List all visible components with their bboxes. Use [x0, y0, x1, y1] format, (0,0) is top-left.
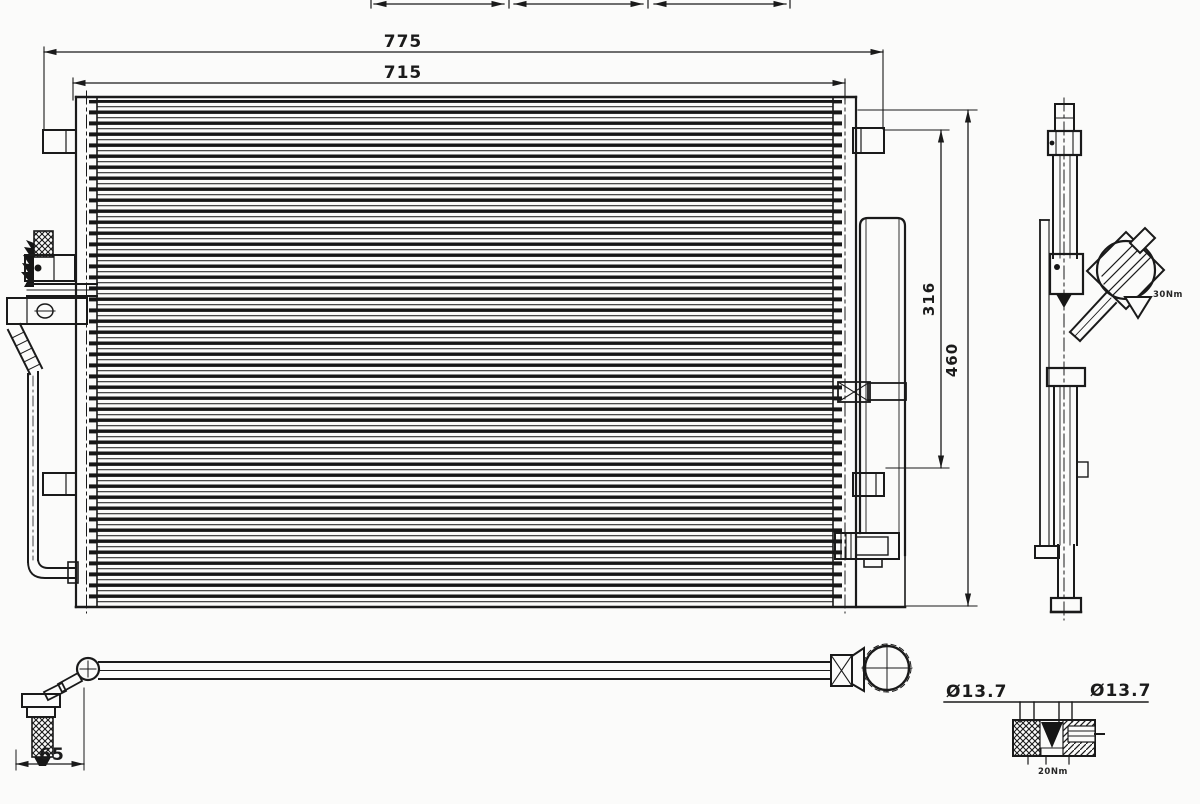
dimension-bracket-span: 316 — [885, 130, 949, 468]
dimension-core-width: 715 — [73, 63, 845, 100]
mounting-bracket-top-right — [853, 128, 884, 153]
dimension-overall-height: 460 — [858, 110, 977, 606]
diagonal-pipe — [1070, 293, 1116, 341]
inlet-fitting-assembly — [7, 231, 97, 324]
condenser-front-view — [7, 91, 906, 613]
port-torque-note: 20Nm — [1038, 767, 1068, 777]
drier-connector-block — [838, 382, 906, 402]
tube-ends-right — [833, 100, 842, 605]
port-diameter-right-label: Ø13.7 — [1090, 681, 1151, 701]
side-torque-note: 30Nm — [1153, 290, 1183, 300]
dim-316-label: 316 — [920, 282, 938, 316]
left-pipe-run — [8, 324, 78, 583]
tube-ends-left — [89, 100, 97, 605]
port-diameter-left-label: Ø13.7 — [946, 682, 1007, 702]
hose-assembly: 65 — [16, 644, 912, 770]
mounting-bracket-bottom-left — [43, 473, 76, 495]
core-tubes — [97, 100, 833, 605]
hose-right-flange — [831, 644, 912, 692]
mounting-bracket-top-left — [43, 130, 76, 153]
condenser-side-view: 30Nm — [1035, 98, 1183, 620]
receiver-drier — [860, 218, 905, 555]
dim-460-label: 460 — [943, 343, 961, 377]
dim-715-label: 715 — [384, 63, 423, 83]
mounting-bracket-bottom-right — [853, 473, 884, 496]
dim-65-label: 65 — [39, 745, 65, 765]
cutoff-dimension-lines — [371, 0, 790, 8]
pipe-flange-circle — [1087, 228, 1164, 318]
serrated-clip — [21, 240, 34, 287]
condenser-technical-drawing: 775 715 — [0, 0, 1200, 804]
dim-775-label: 775 — [384, 32, 423, 52]
drawing-canvas: 775 715 — [0, 0, 1200, 804]
fitting-cross-section — [1013, 720, 1104, 764]
port-detail: Ø13.7 Ø13.7 20Nm — [944, 681, 1151, 777]
